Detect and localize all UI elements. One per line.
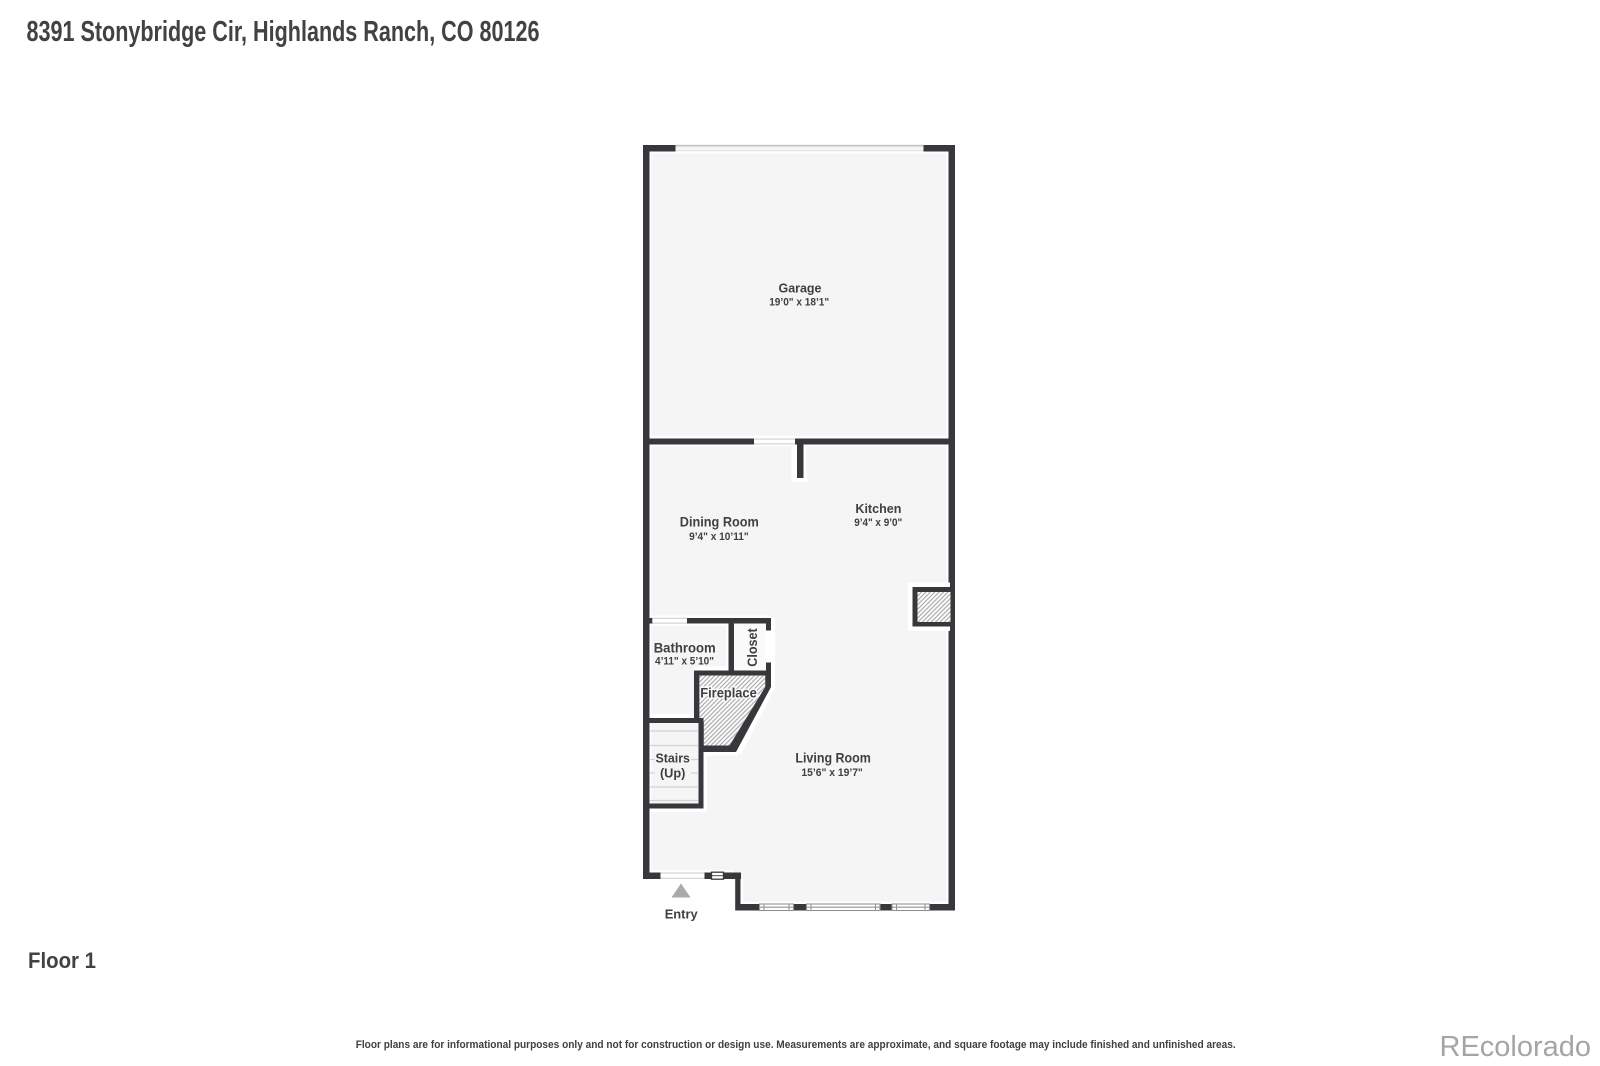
svg-text:Entry: Entry	[665, 906, 699, 921]
svg-text:9’4" x 9’0": 9’4" x 9’0"	[854, 517, 902, 529]
svg-text:8391 Stonybridge Cir, Highland: 8391 Stonybridge Cir, Highlands Ranch, C…	[27, 16, 540, 48]
svg-text:Floor plans are for informatio: Floor plans are for informational purpos…	[356, 1039, 1236, 1051]
svg-text:Bathroom: Bathroom	[654, 640, 716, 655]
svg-text:Floor 1: Floor 1	[28, 948, 96, 973]
svg-text:Garage: Garage	[779, 281, 822, 296]
svg-text:Kitchen: Kitchen	[855, 501, 901, 516]
svg-text:Closet: Closet	[745, 628, 760, 667]
svg-text:Dining Room: Dining Room	[680, 515, 759, 530]
svg-text:9’4" x 10’11": 9’4" x 10’11"	[689, 531, 749, 543]
svg-text:REcolorado: REcolorado	[1440, 1031, 1592, 1063]
svg-text:Stairs: Stairs	[655, 751, 690, 766]
svg-text:4’11" x 5’10": 4’11" x 5’10"	[655, 656, 714, 668]
svg-text:15’6" x 19’7": 15’6" x 19’7"	[801, 767, 863, 779]
svg-text:Fireplace: Fireplace	[700, 685, 757, 701]
svg-text:19’0" x 18’1": 19’0" x 18’1"	[769, 297, 829, 309]
svg-text:(Up): (Up)	[660, 765, 686, 780]
svg-text:Living Room: Living Room	[795, 751, 871, 766]
